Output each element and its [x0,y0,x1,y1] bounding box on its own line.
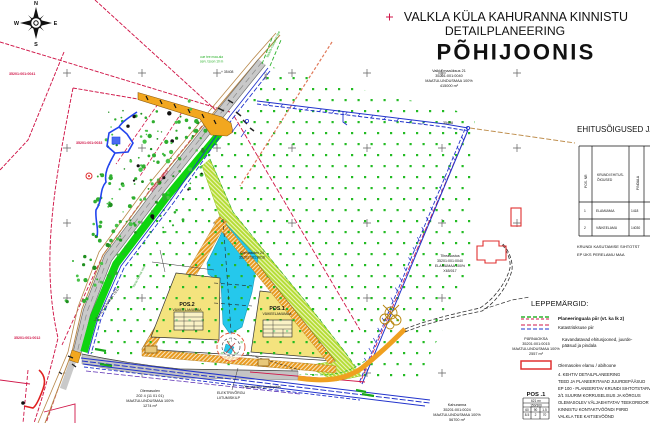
svg-text:90: 90 [534,408,538,412]
svg-text:S: S [34,42,38,48]
svg-text:OLEMASOLEV VÄLJAEHITATAV TEEKO: OLEMASOLEV VÄLJAEHITATAV TEEKORIDOR [558,400,649,405]
svg-text:PÄRNAOKSA: PÄRNAOKSA [524,337,548,341]
svg-text:14030: 14030 [631,226,640,230]
svg-text:PINDALA: PINDALA [636,175,640,190]
svg-text:VALKLA TEE KAITSEVÖÖND: VALKLA TEE KAITSEVÖÖND [558,414,614,419]
svg-text:2: 2 [535,413,537,417]
svg-text:KRUNDI EHITUS-: KRUNDI EHITUS- [597,173,624,177]
svg-text:KINNISTU KONTAKTVÖÖNDI PIIRID: KINNISTU KONTAKTVÖÖNDI PIIRID [558,407,628,412]
svg-text:2: 2 [584,226,586,230]
svg-text:35201:001:0024: 35201:001:0024 [443,408,470,412]
svg-text:+ 35408: + 35408 [221,70,233,74]
svg-text:E: E [54,21,58,27]
svg-text:ELAMUMAA 100%: ELAMUMAA 100% [435,264,466,268]
svg-text:TEED JA PLANEERITAVAD JUURDEPÄ: TEED JA PLANEERITAVAD JUURDEPÄÄSUD [558,379,645,384]
svg-text:35201:001:0041: 35201:001:0041 [9,72,35,76]
svg-text:POS. NR: POS. NR [584,174,588,188]
svg-text:MAATULUNDUSMAA 100%: MAATULUNDUSMAA 100% [425,79,473,83]
svg-text:LEPPEMÄRGID:: LEPPEMÄRGID: [531,299,588,308]
svg-text:PÕHIJOONIS: PÕHIJOONIS [437,40,596,65]
svg-text:pääsud ja pindala: pääsud ja pindala [562,343,597,348]
svg-text:N: N [34,1,38,7]
svg-text:621 m²: 621 m² [531,399,541,403]
svg-text:VALKLA KÜLA KAHURANNA KINNISTU: VALKLA KÜLA KAHURANNA KINNISTU [404,10,628,24]
svg-text:35201:001:0040: 35201:001:0040 [437,259,463,263]
svg-text:56700 m²: 56700 m² [449,418,466,422]
svg-text:Valkla maaüksus 21: Valkla maaüksus 21 [432,69,466,73]
svg-text:202 4 (11 01 01): 202 4 (11 01 01) [136,394,164,398]
svg-text:35201:001:0016: 35201:001:0016 [239,256,265,260]
svg-text:ELEKTRIVÕRGU: ELEKTRIVÕRGU [217,390,246,395]
svg-text:2/1 SUURIM KORRUSELISUS JA KÕR: 2/1 SUURIM KORRUSELISUS JA KÕRGUS [558,393,641,398]
svg-text:MAATULUNDUSMAA 100%: MAATULUNDUSMAA 100% [126,399,174,403]
svg-text:KRUNDI KASUTAMISE SIHTOTST: KRUNDI KASUTAMISE SIHTOTST [577,244,640,249]
svg-text:2557 m²: 2557 m² [529,352,544,356]
svg-text:X65/017: X65/017 [443,269,456,273]
svg-text:35201:001:0040: 35201:001:0040 [435,74,462,78]
svg-text:ELAMUMAA: ELAMUMAA [596,209,615,213]
svg-text:Katastriüksuse piir: Katastriüksuse piir [558,325,594,330]
svg-text:Olemasolev juurdepääs: Olemasolev juurdepääs [243,385,281,389]
svg-text:1274 m²: 1274 m² [143,404,158,408]
svg-text:415000 m²: 415000 m² [440,84,459,88]
svg-text:VÄIKEELAMUMAA: VÄIKEELAMUMAA [172,308,202,312]
svg-text:4. KEHTIV DETAILPLANEERING: 4. KEHTIV DETAILPLANEERING [558,372,620,377]
svg-text:MAATULUNDUSMAA 100%: MAATULUNDUSMAA 100% [512,347,560,351]
svg-text:DETAILPLANEERING: DETAILPLANEERING [445,24,565,38]
svg-text:1418: 1418 [631,209,639,213]
svg-text:60: 60 [525,408,529,412]
svg-text:8.5: 8.5 [525,413,530,417]
svg-text:EP 100 - PLANEERITAV KRUNDI SI: EP 100 - PLANEERITAV KRUNDI SIHTOTSTARVE [558,386,650,391]
svg-text:3840: 3840 [264,72,268,80]
svg-text:1.5: 1.5 [542,408,547,412]
svg-text:uue tee maa-ala: uue tee maa-ala [200,55,223,59]
svg-text:Kahuranna: Kahuranna [448,403,467,407]
svg-text:1: 1 [584,209,586,213]
svg-text:35201:001:0015: 35201:001:0015 [522,342,549,346]
svg-text:EP ÜKS PERELAMU MAA: EP ÜKS PERELAMU MAA [577,252,625,257]
svg-text:Olemasolev elamu / abihoone: Olemasolev elamu / abihoone [558,363,617,368]
svg-text:Planeeringuala piir (vt. ka lk: Planeeringuala piir (vt. ka lk 2) [558,316,625,321]
svg-text:LIITUMISKILP: LIITUMISKILP [217,396,241,400]
svg-text:VÄIKEELAMU: VÄIKEELAMU [596,226,618,230]
svg-text:serv. tsoon 10 m: serv. tsoon 10 m [200,60,224,64]
svg-text:EHITUSÕIGUSED JA: EHITUSÕIGUSED JA [577,125,650,134]
svg-text:W: W [14,21,20,27]
svg-text:150/300: 150/300 [530,404,542,408]
svg-text:70: 70 [543,413,547,417]
svg-text:35201:001:0033: 35201:001:0033 [76,141,102,145]
svg-text:Olemasolev: Olemasolev [140,389,160,393]
svg-text:Tiheasustus: Tiheasustus [440,254,459,258]
svg-text:VÄIKEELAMUMAA: VÄIKEELAMUMAA [262,312,292,316]
svg-text:POS .1: POS .1 [527,392,546,398]
svg-text:MAATULUNDUSMAA 100%: MAATULUNDUSMAA 100% [433,413,481,417]
svg-text:35408: 35408 [443,121,453,125]
svg-text:ÕIGUSED: ÕIGUSED [597,177,613,182]
svg-text:Olemasolev 24: Olemasolev 24 [240,251,264,255]
svg-text:35201:001:0012: 35201:001:0012 [14,336,40,340]
svg-text:Kavandatavad ehitusjooned, juu: Kavandatavad ehitusjooned, juurde- [562,337,633,342]
